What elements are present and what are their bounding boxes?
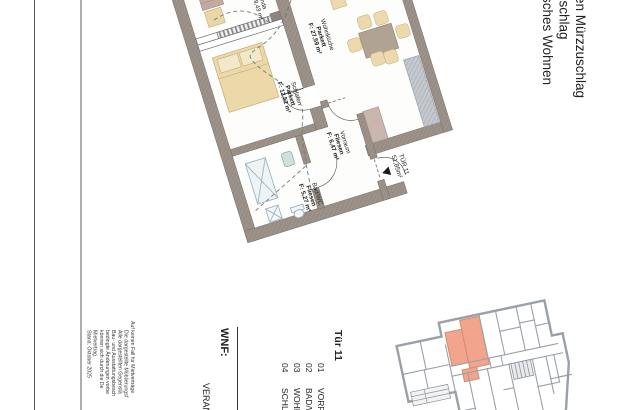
svg-text:SCHLAFEN: SCHLAFEN bbox=[280, 388, 290, 410]
svg-text:VORRAUM: VORRAUM bbox=[316, 388, 326, 410]
svg-text:Auf keinen Fall für Mietverträ: Auf keinen Fall für Mietverträge bbox=[129, 321, 135, 393]
svg-text:en Mürzzuschlag: en Mürzzuschlag bbox=[573, 0, 588, 98]
svg-text:bedingte Änderungen vorbe: bedingte Änderungen vorbe bbox=[104, 330, 111, 394]
svg-text:Tür 11: Tür 11 bbox=[332, 330, 344, 361]
svg-text:sches Wohnen: sches Wohnen bbox=[540, 0, 555, 85]
svg-text:Stand: Oktober 2025: Stand: Oktober 2025 bbox=[85, 330, 91, 378]
svg-text:Mietvertrag.: Mietvertrag. bbox=[92, 330, 98, 357]
svg-text:uschlag: uschlag bbox=[557, 0, 572, 40]
svg-text:Alle dargestellten Gegenstä: Alle dargestellten Gegenstä bbox=[116, 330, 122, 394]
svg-text:01: 01 bbox=[316, 363, 326, 373]
svg-text:04: 04 bbox=[280, 363, 290, 373]
svg-text:02: 02 bbox=[304, 363, 314, 373]
svg-text:03: 03 bbox=[292, 363, 302, 373]
svg-text:Bau- und Ausstattungsbesch: Bau- und Ausstattungsbesch bbox=[110, 330, 116, 396]
svg-text:BAD/WC: BAD/WC bbox=[304, 388, 314, 410]
svg-text:WNF:: WNF: bbox=[218, 328, 230, 357]
svg-text:VERANDA: VERANDA bbox=[201, 383, 211, 410]
svg-text:können sich durch die De: können sich durch die De bbox=[98, 330, 104, 389]
svg-text:WOHNKÜCHE: WOHNKÜCHE bbox=[292, 388, 302, 410]
svg-text:Die dargestellte Möblierungsf: Die dargestellte Möblierungsf bbox=[123, 330, 129, 398]
